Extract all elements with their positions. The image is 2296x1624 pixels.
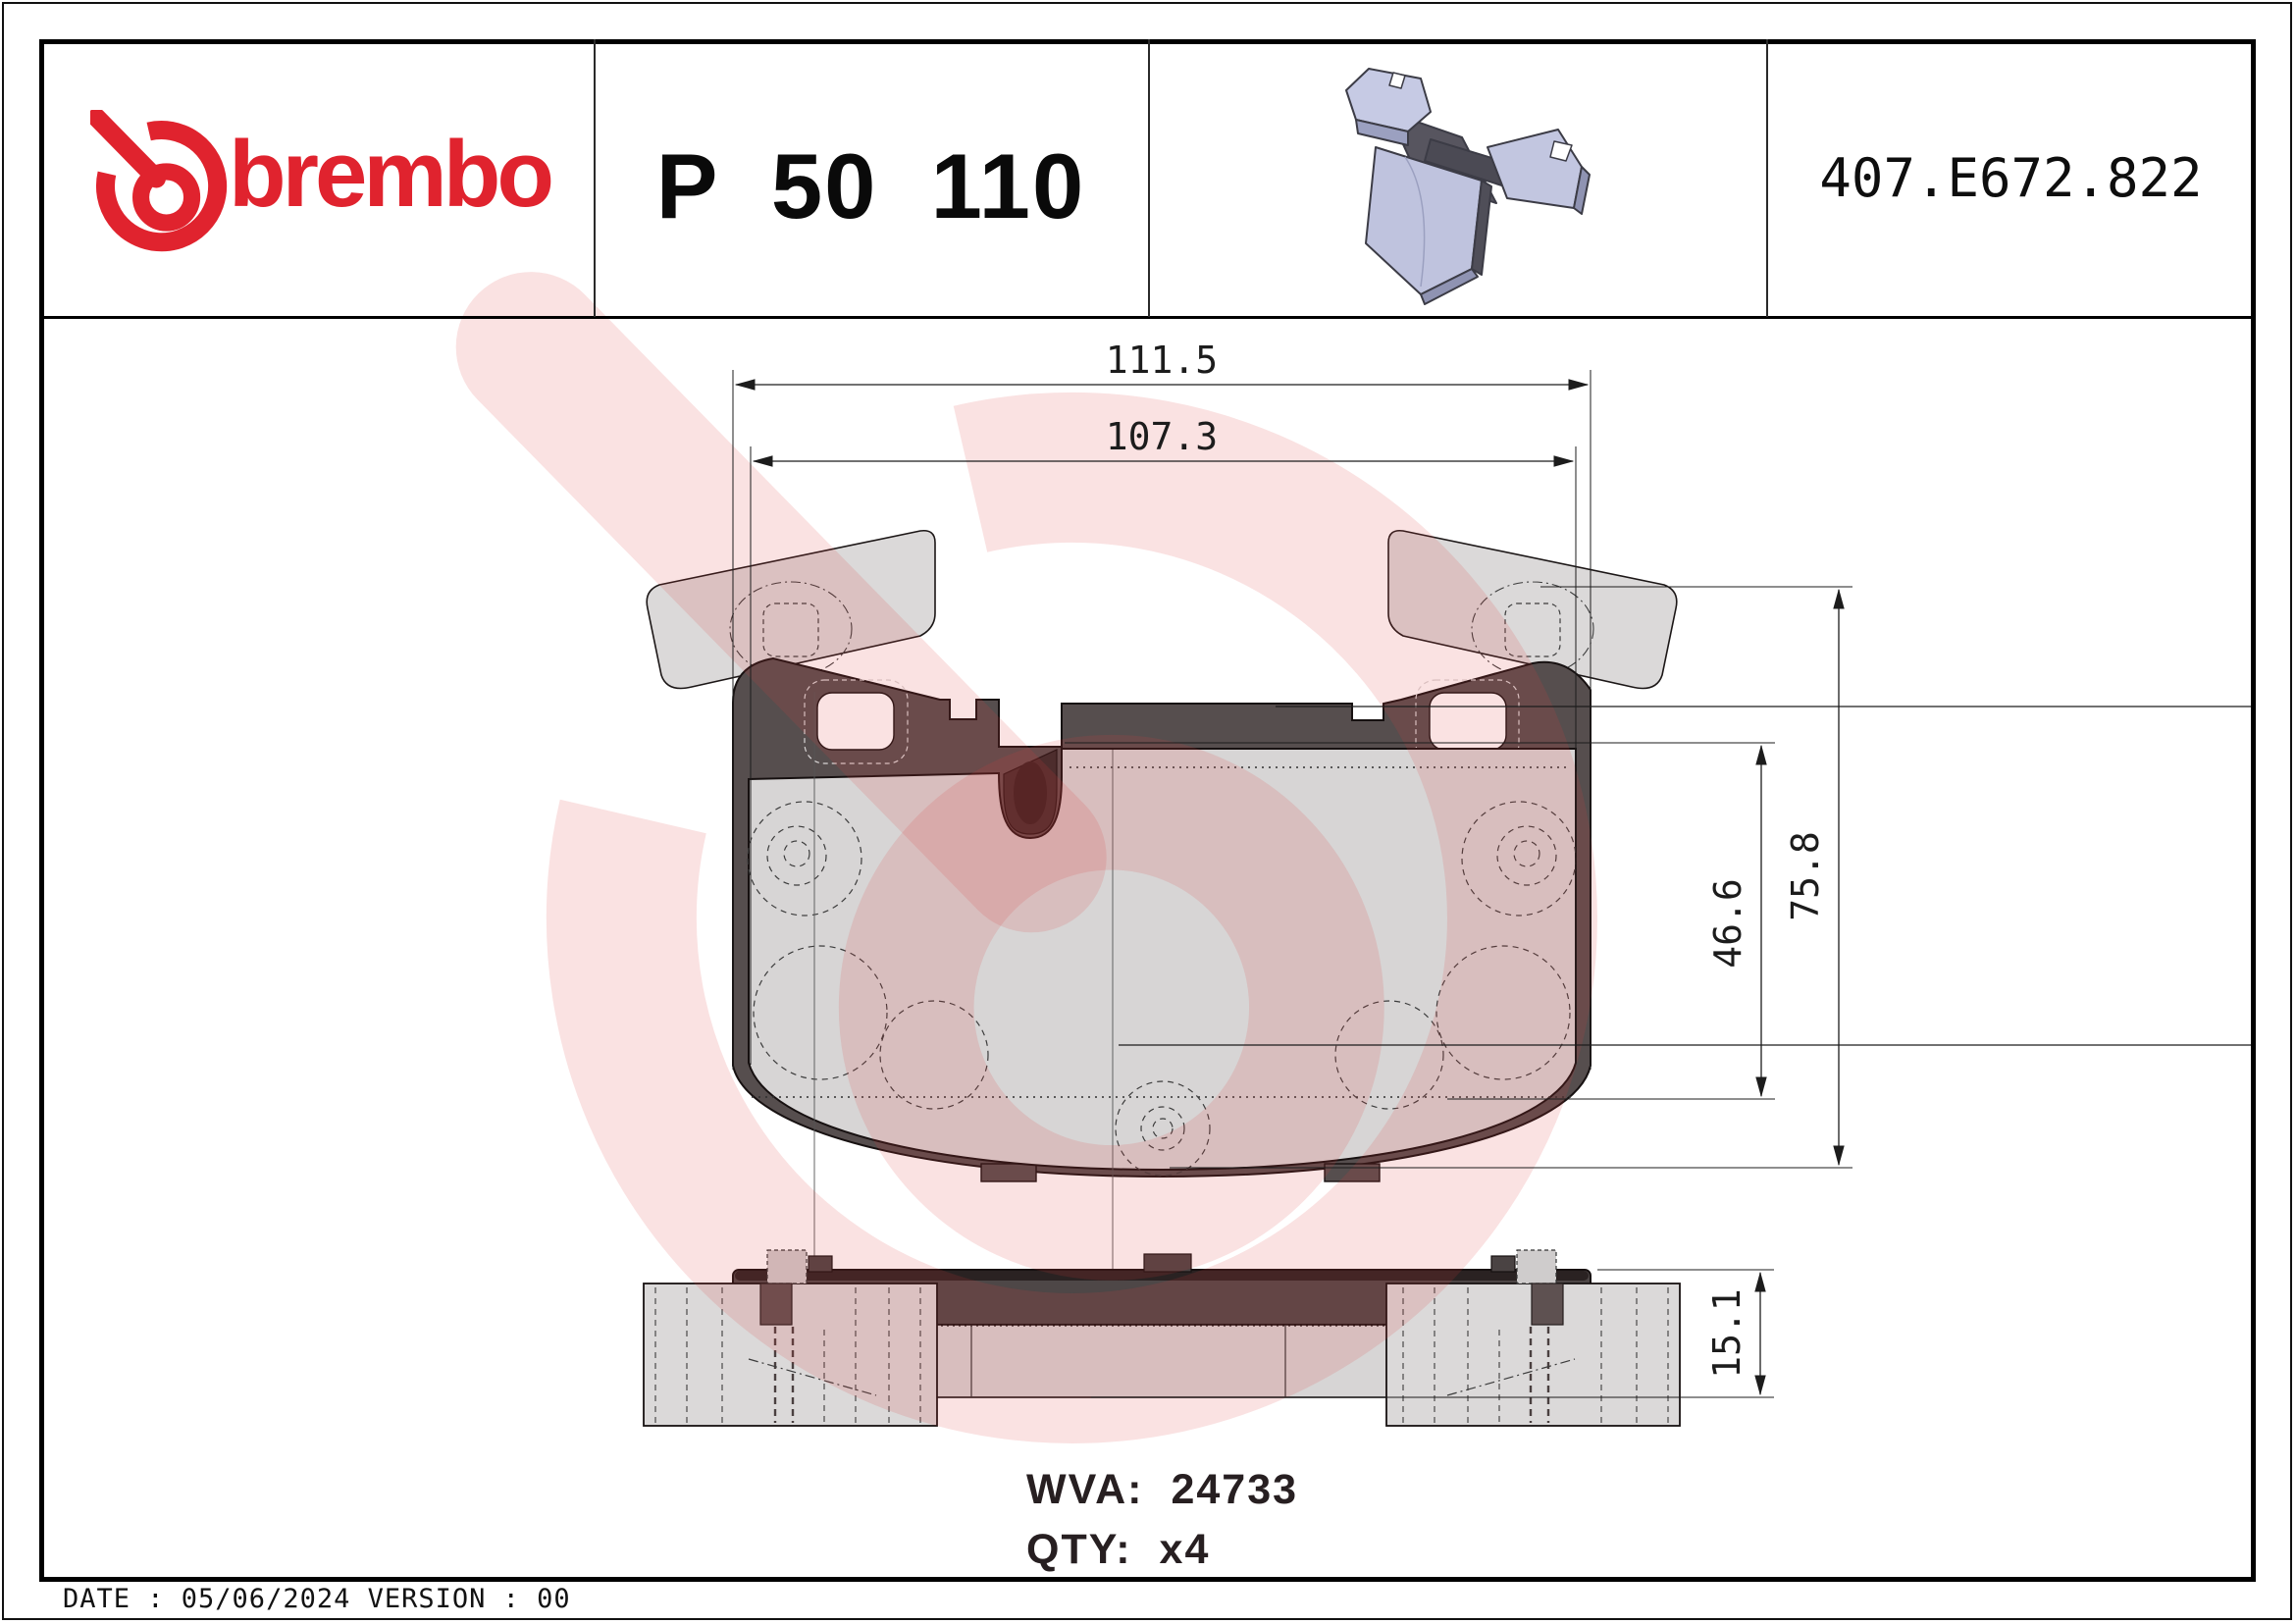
brake-pad-3d-icon [1315, 51, 1609, 306]
part-number: P 50 110 [594, 137, 1148, 236]
datasheet-page: { "header": { "brand": "brembo", "part_n… [0, 0, 2296, 1624]
header-divider [1148, 39, 1150, 317]
footer-revision: DATE : 05/06/2024 VERSION : 00 [63, 1584, 571, 1614]
wva-value: 24733 [1171, 1466, 1298, 1514]
brembo-logo-icon [90, 110, 233, 267]
brand-wordmark: brembo [229, 126, 550, 224]
wva-label: WVA: [1026, 1466, 1143, 1514]
catalog-code: 407.E672.822 [1766, 147, 2256, 209]
qty-value: x4 [1160, 1526, 1211, 1574]
info-block: WVA: 24733 QTY: x4 [1026, 1466, 1298, 1586]
qty-label: QTY: [1026, 1526, 1132, 1574]
